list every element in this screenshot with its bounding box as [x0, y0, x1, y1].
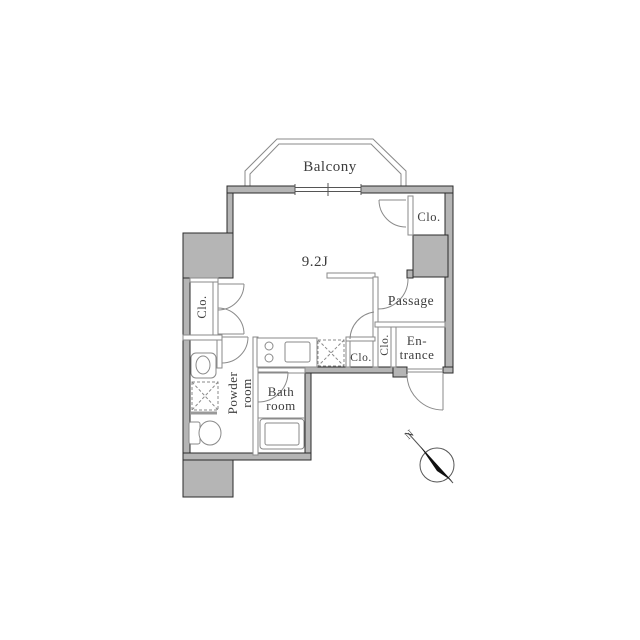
kitchen [257, 338, 344, 367]
powder-room-fixtures [189, 353, 221, 445]
wall-block-left [183, 233, 233, 278]
toilet-tank [189, 422, 200, 444]
washbasin-bowl [196, 356, 210, 374]
stove-burner-icon [265, 354, 273, 362]
wall-closet-topright-left [408, 196, 413, 235]
wall-entrance-step [393, 367, 407, 377]
floor-plan-page: N Balcony 9.2J Clo. Passage En- trance B… [0, 0, 640, 640]
compass: N [403, 427, 454, 483]
door-arc-hall [350, 312, 374, 339]
wall-closet-left-bottom [183, 335, 222, 340]
wall-top-left [227, 186, 295, 193]
wall-right [445, 193, 453, 373]
powder-label-line2: room [239, 378, 254, 407]
wall-block-right [413, 235, 448, 277]
main-room-size-label: 9.2J [302, 254, 329, 270]
door-arc-closet-topright [379, 200, 406, 227]
wall-bottom-kitchen [305, 367, 407, 373]
kitchen-sink [285, 342, 310, 362]
floor-plan: N Balcony 9.2J Clo. Passage En- trance B… [0, 0, 640, 640]
wall-left-upper [227, 193, 233, 233]
window [295, 183, 361, 196]
powder-label-line1: Powder [225, 371, 240, 414]
bath-label-line1: Bath [268, 384, 295, 399]
wall-passage-entrance-divider [375, 322, 445, 327]
wall-hall-top [327, 273, 375, 278]
closet-left-label: Clo. [195, 295, 209, 318]
wall-powder-entry [217, 340, 222, 368]
balcony-label: Balcony [303, 159, 357, 175]
bath-label-line2: room [266, 398, 295, 413]
entrance-label-line1: En- [407, 333, 427, 348]
wall-bottom-right-stub [443, 367, 453, 373]
door-arc-closet-left-1 [218, 284, 244, 310]
bathtub-inner [265, 423, 299, 445]
wall-top-right [361, 186, 453, 193]
door-arc-entrance [407, 374, 443, 410]
closet-hall-narrow-label: Clo. [379, 334, 391, 356]
passage-label: Passage [388, 293, 434, 308]
stove-burner-icon [265, 342, 273, 350]
closet-hall-small-label: Clo. [350, 352, 372, 364]
wall-passage-stub [407, 270, 413, 278]
toilet-bowl [199, 421, 221, 445]
wall-closet-left-right [213, 282, 218, 335]
wall-closet-left-top [190, 278, 218, 282]
bath-fixtures [260, 419, 304, 449]
wall-closet-narrow-right [391, 327, 396, 367]
door-arc-closet-left-2 [218, 308, 244, 334]
wall-block-bottom-left [183, 455, 233, 497]
wall-bottom-bath [183, 453, 311, 460]
entrance-label-line2: trance [400, 347, 435, 362]
door-arc-powder [222, 337, 248, 363]
closet-topright-label: Clo. [417, 210, 440, 224]
wall-bath-right [305, 373, 311, 453]
